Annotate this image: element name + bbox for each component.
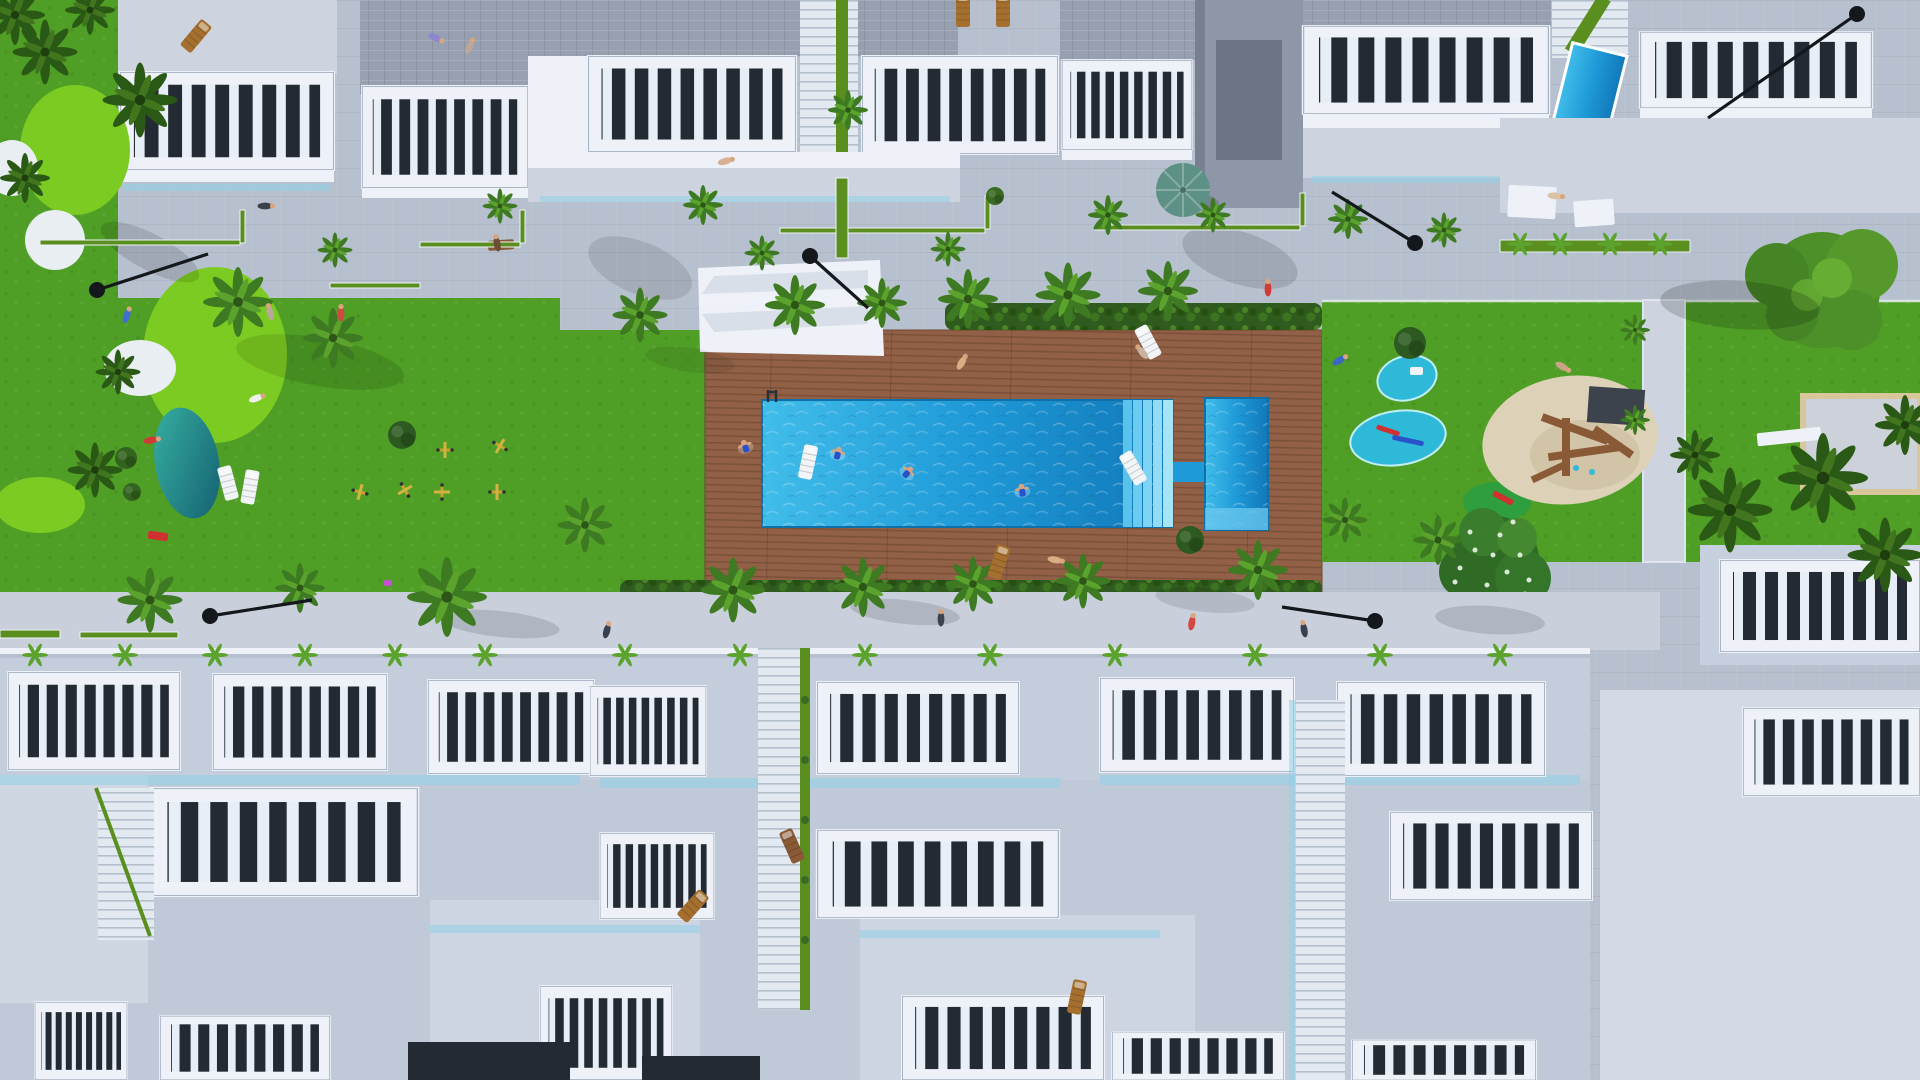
facade <box>528 56 588 152</box>
palm-tree <box>1138 261 1198 321</box>
glass-balustrade <box>430 925 700 933</box>
balcony-frame <box>160 1016 330 1080</box>
roof <box>1060 0 1198 60</box>
palm-tree <box>558 498 613 553</box>
grass-strip <box>1095 225 1300 230</box>
staircase <box>1289 700 1345 1080</box>
render-canvas <box>0 0 1920 1080</box>
palm-tree <box>1413 515 1463 565</box>
sun-lounger <box>956 0 970 27</box>
balcony-frame <box>1352 1040 1536 1080</box>
bush <box>1176 526 1204 554</box>
staircase <box>800 0 858 178</box>
palm-tree <box>765 275 825 335</box>
palm-tree <box>318 233 353 268</box>
balcony-frame <box>35 1002 127 1080</box>
person <box>258 203 276 210</box>
balcony-frame <box>8 672 180 770</box>
palm-tree <box>931 232 966 267</box>
glass-balustrade <box>0 775 580 785</box>
rooftop-terrace <box>115 0 337 74</box>
bush <box>115 447 137 469</box>
palm-tree <box>745 236 780 271</box>
palm-tree <box>13 20 78 85</box>
grass-strip <box>420 242 520 247</box>
glass-balustrade <box>540 196 950 202</box>
balcony-frame <box>817 682 1019 774</box>
facade-band <box>120 170 334 182</box>
window-void <box>642 1056 760 1080</box>
facade-band <box>528 152 960 168</box>
stair-green-strip <box>836 0 848 178</box>
grass-strip <box>780 228 985 233</box>
rooftop-unit <box>1507 185 1557 219</box>
palm-tree <box>938 269 998 329</box>
facade-band <box>1062 150 1192 160</box>
grass-strip <box>836 178 848 258</box>
play-detail <box>1589 469 1595 475</box>
kids-pool <box>1205 398 1268 530</box>
grass-strip <box>1300 193 1305 226</box>
palm-tree <box>683 185 723 225</box>
palm-tree <box>1323 498 1368 543</box>
grass-strip <box>40 240 240 245</box>
bush <box>986 187 1004 205</box>
aerial-render-scene <box>0 0 1920 1080</box>
palm-tree <box>407 557 487 637</box>
grass-strip <box>0 630 60 638</box>
window-void <box>408 1042 570 1080</box>
person <box>938 609 945 627</box>
main-swimming-pool <box>762 390 1173 527</box>
balcony-frame <box>1062 60 1192 150</box>
staircase <box>96 788 154 940</box>
pool-channel <box>1173 462 1205 482</box>
palm-tree <box>1328 199 1368 239</box>
play-detail <box>1573 465 1579 471</box>
pool-step <box>1153 400 1162 527</box>
palm-tree <box>303 308 363 368</box>
palm-tree <box>1088 195 1128 235</box>
balcony-frame <box>1390 812 1592 900</box>
palm-tree <box>118 568 183 633</box>
pool-step <box>1163 400 1173 527</box>
roof <box>360 0 530 94</box>
palm-tree <box>1228 540 1288 600</box>
palm-tree <box>0 153 50 203</box>
sun-lounger <box>996 0 1010 27</box>
palm-tree <box>1620 315 1650 345</box>
roof <box>1303 0 1551 26</box>
palm-tree <box>1620 405 1650 435</box>
palm-tree <box>1036 263 1101 328</box>
glass-balustrade <box>600 778 1060 788</box>
pool-step <box>1205 508 1268 530</box>
balcony-frame <box>213 674 387 770</box>
glass-balustrade <box>860 930 1160 938</box>
palm-tree <box>613 288 668 343</box>
balcony-frame <box>588 56 796 152</box>
play-equipment <box>384 580 392 586</box>
bush <box>123 483 141 501</box>
balcony-frame <box>1640 32 1872 108</box>
palm-tree <box>203 267 273 337</box>
balcony-frame <box>590 686 706 776</box>
balcony-frame <box>862 56 1058 154</box>
staircase <box>758 648 810 1010</box>
palm-tree <box>1427 213 1462 248</box>
hedge-row <box>945 303 1322 330</box>
palm-tree <box>68 443 123 498</box>
grass-strip <box>330 283 420 288</box>
palm-tree <box>1778 433 1868 523</box>
pool-step <box>1143 400 1152 527</box>
balcony-frame <box>1100 678 1294 772</box>
palm-tree <box>483 189 518 224</box>
balcony-frame <box>428 680 594 774</box>
balcony-frame <box>362 86 528 188</box>
balcony-frame <box>1337 682 1545 776</box>
balcony-frame <box>1303 26 1549 114</box>
bottom-promenade <box>0 592 1660 654</box>
palm-tree <box>833 557 893 617</box>
alley-wall <box>1216 40 1282 160</box>
palm-tree <box>828 90 868 130</box>
grass-strip <box>80 632 178 638</box>
balcony-frame <box>1743 708 1920 796</box>
palm-tree <box>1688 468 1773 553</box>
grass-strip <box>520 210 525 243</box>
palm-tree <box>96 350 141 395</box>
grass-strip <box>240 210 245 243</box>
person <box>338 304 345 322</box>
palm-tree <box>1196 198 1231 233</box>
palm-tree <box>103 63 178 138</box>
glass-balustrade <box>124 184 330 191</box>
promenade-path <box>0 592 1660 650</box>
bush <box>1394 327 1426 359</box>
balcony-frame <box>817 830 1059 918</box>
person <box>1265 279 1272 297</box>
roof <box>528 0 958 56</box>
rooftop-unit <box>1573 199 1615 228</box>
play-equipment <box>1410 367 1423 375</box>
palm-tree <box>1670 430 1720 480</box>
balcony-frame <box>150 788 418 896</box>
bush <box>388 421 416 449</box>
balcony-frame <box>1112 1032 1284 1080</box>
palm-tree <box>701 558 766 623</box>
palm-tree <box>1848 518 1920 593</box>
